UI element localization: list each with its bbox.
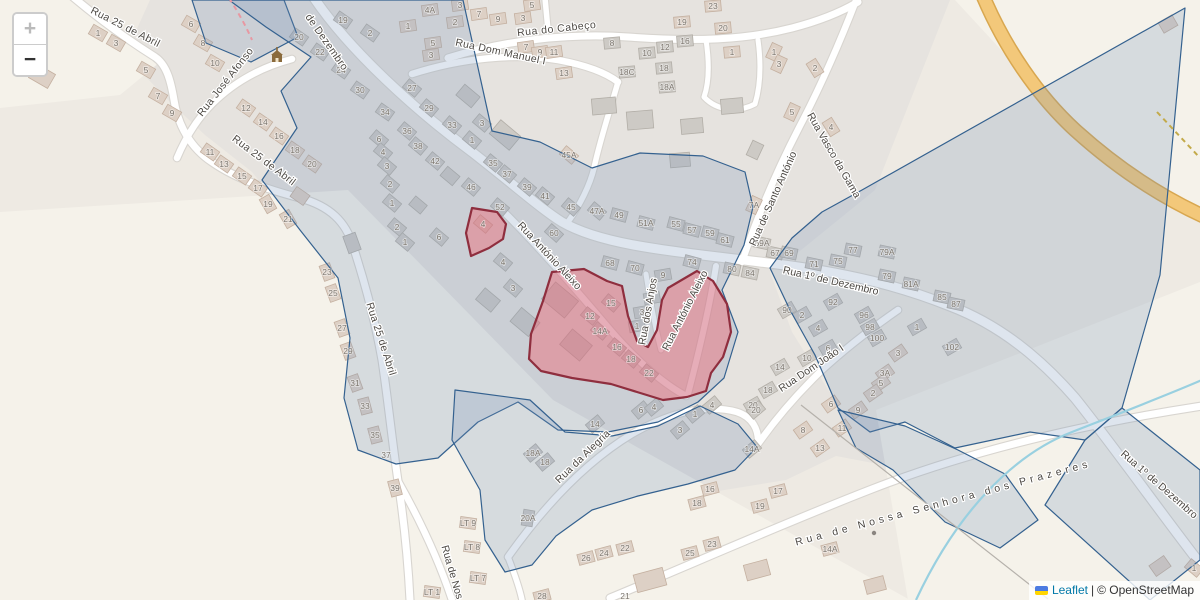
house-number: 13 <box>219 159 229 169</box>
house-number: 12 <box>585 311 595 321</box>
house-number: 14A <box>744 444 759 454</box>
house-number: 1 <box>390 198 395 208</box>
house-number: 2 <box>871 388 876 398</box>
house-number: 79A <box>879 247 894 257</box>
building-footprint <box>680 118 703 135</box>
house-number: 6 <box>377 134 382 144</box>
house-number: 39 <box>390 483 400 493</box>
house-number: 21 <box>283 214 293 224</box>
house-number: 7A <box>749 200 760 210</box>
house-number: 67 <box>770 248 780 258</box>
house-number: 18 <box>692 498 702 508</box>
house-number: 59 <box>705 228 715 238</box>
house-number: 2 <box>453 17 458 27</box>
house-number: 70 <box>630 263 640 273</box>
building-footprint <box>720 98 743 115</box>
house-number: 42 <box>430 156 440 166</box>
house-number: 4A <box>425 5 436 15</box>
house-number: 2 <box>813 63 818 73</box>
house-number: 1 <box>693 409 698 419</box>
house-number: 18A <box>659 82 674 92</box>
house-number: 3 <box>896 348 901 358</box>
map-tiles: 1357968101214161820111315171920222430342… <box>0 0 1200 600</box>
house-number: 20 <box>751 405 761 415</box>
house-number: 37 <box>502 169 512 179</box>
house-number: 16 <box>680 36 690 46</box>
house-number: 12 <box>241 103 251 113</box>
house-number: 81A <box>903 279 918 289</box>
house-number: 3 <box>678 425 683 435</box>
house-number: 25 <box>685 548 695 558</box>
house-number: 4 <box>652 402 657 412</box>
house-number: 13 <box>559 68 569 78</box>
building <box>626 110 653 130</box>
house-number: 74 <box>687 257 697 267</box>
house-number: 41 <box>540 191 550 201</box>
house-number: 1 <box>730 47 735 57</box>
house-number: 11 <box>550 47 559 57</box>
house-number: 8 <box>610 38 615 48</box>
house-number: 19 <box>338 15 348 25</box>
house-number: 27 <box>407 83 417 93</box>
house-number: 28 <box>537 591 547 600</box>
house-number: 22 <box>644 368 654 378</box>
attribution-bar: Leaflet|© OpenStreetMap <box>1029 581 1200 600</box>
house-number: 7 <box>156 91 161 101</box>
house-number: 20 <box>718 23 728 33</box>
house-number: 4 <box>710 400 715 410</box>
house-number: 1 <box>470 135 475 145</box>
house-number: LT 9 <box>460 518 476 528</box>
house-number: 1 <box>1192 563 1197 573</box>
house-number: 13 <box>815 443 825 453</box>
house-number: 15 <box>606 298 616 308</box>
house-number: 18 <box>763 385 773 395</box>
house-number: 27 <box>337 323 347 333</box>
house-number: 34 <box>380 107 390 117</box>
house-number: 36 <box>402 126 412 136</box>
house-number: 18C <box>619 67 635 77</box>
house-number: 18 <box>290 145 300 155</box>
house-number: 37 <box>381 450 391 460</box>
house-number: 23 <box>708 1 718 11</box>
house-number: LT 8 <box>464 542 480 552</box>
house-number: 5 <box>530 0 535 10</box>
house-number: 16 <box>274 131 284 141</box>
house-number: 10 <box>642 48 652 58</box>
house-number: 102 <box>945 342 959 352</box>
house-number: 98 <box>865 322 875 332</box>
house-number: 20A <box>520 513 535 523</box>
house-number: 39 <box>522 182 532 192</box>
house-number: 18 <box>626 354 636 364</box>
house-number: 100 <box>870 333 884 343</box>
attribution-separator: | <box>1091 583 1094 597</box>
house-number: 20 <box>307 159 317 169</box>
house-number: 1 <box>96 28 101 38</box>
house-number: 9 <box>496 14 501 24</box>
house-number: LT 1 <box>424 587 440 597</box>
house-number: 8 <box>201 38 206 48</box>
house-number: 30 <box>355 85 365 95</box>
leaflet-link[interactable]: Leaflet <box>1052 583 1088 597</box>
house-number: 24 <box>599 548 609 558</box>
house-number: 85 <box>937 292 947 302</box>
house-number: 14 <box>775 362 785 372</box>
building <box>680 118 703 135</box>
house-number: 29 <box>343 346 353 356</box>
house-number: 5 <box>431 38 436 48</box>
building <box>720 98 743 115</box>
house-number: 84 <box>745 268 755 278</box>
house-number: 46 <box>466 182 476 192</box>
house-number: 45A <box>561 150 576 160</box>
house-number: 14A <box>822 544 837 554</box>
house-number: 1 <box>406 21 411 31</box>
house-number: 4 <box>381 147 386 157</box>
house-number: 11 <box>838 423 847 433</box>
house-number: 3 <box>521 13 526 23</box>
house-number: 11 <box>206 147 215 157</box>
house-number: 26 <box>581 553 591 563</box>
house-number: 2 <box>395 222 400 232</box>
house-number: 2 <box>368 28 373 38</box>
house-number: 19 <box>263 199 273 209</box>
house-number: 68 <box>605 258 615 268</box>
power-pole-dot <box>872 531 876 535</box>
building-footprint <box>626 110 653 130</box>
house-number: 15 <box>237 171 247 181</box>
house-number: 21 <box>620 591 630 600</box>
house-number: 3 <box>480 118 485 128</box>
house-number: 87 <box>951 299 961 309</box>
house-number: 17 <box>773 486 783 496</box>
house-number: 3 <box>385 161 390 171</box>
house-number: 14 <box>258 117 268 127</box>
house-number: 33 <box>360 401 370 411</box>
house-number: 5 <box>879 378 884 388</box>
house-number: 6 <box>829 399 834 409</box>
house-number: 3 <box>429 50 434 60</box>
house-number: 23 <box>707 539 717 549</box>
house-number: 57 <box>687 225 697 235</box>
house-number: 52 <box>495 202 505 212</box>
house-number: 4 <box>816 323 821 333</box>
house-number: 18 <box>659 63 669 73</box>
house-number: 6 <box>189 19 194 29</box>
house-number: 18 <box>540 457 550 467</box>
house-number: 16 <box>705 484 715 494</box>
house-number: 10 <box>210 58 220 68</box>
house-number: 19 <box>755 501 765 511</box>
house-number: 45 <box>566 202 576 212</box>
house-number: 61 <box>720 235 730 245</box>
building <box>591 97 616 115</box>
house-number: 75 <box>833 256 843 266</box>
osm-link[interactable]: © OpenStreetMap <box>1097 583 1194 597</box>
house-number: 38 <box>413 141 423 151</box>
house-number: 14 <box>590 419 600 429</box>
house-number: 47A <box>589 206 604 216</box>
house-number: 60 <box>549 228 559 238</box>
house-number: 55 <box>671 219 681 229</box>
house-number: 80 <box>727 264 737 274</box>
house-number: 1 <box>772 47 777 57</box>
house-number: 49 <box>614 210 624 220</box>
zoom-control: + − <box>12 12 48 77</box>
house-number: 71 <box>809 259 819 269</box>
house-number: 23 <box>322 267 332 277</box>
house-number: 12 <box>660 42 670 52</box>
house-number: 5 <box>144 65 149 75</box>
house-number: 9 <box>856 405 861 415</box>
house-number: 35 <box>370 430 380 440</box>
house-number: 1 <box>403 237 408 247</box>
house-number: 9 <box>661 270 666 280</box>
zoom-in-button[interactable]: + <box>14 14 46 45</box>
house-number: 4 <box>481 219 486 229</box>
house-number: 19 <box>677 17 687 27</box>
house-number: 51A <box>638 218 653 228</box>
house-number: 9 <box>170 108 175 118</box>
house-number: 3 <box>511 283 516 293</box>
house-number: 4 <box>829 122 834 132</box>
house-number: 31 <box>350 378 360 388</box>
house-number: 90 <box>782 305 792 315</box>
house-number: 69 <box>784 248 794 258</box>
house-number: 1 <box>915 322 920 332</box>
map-canvas[interactable]: 1357968101214161820111315171920222430342… <box>0 0 1200 600</box>
house-number: 4 <box>501 257 506 267</box>
house-number: 3 <box>777 59 782 69</box>
ukraine-flag-icon <box>1035 586 1048 595</box>
house-number: 17 <box>253 183 263 193</box>
house-number: 3 <box>114 38 119 48</box>
house-number: 79 <box>882 271 892 281</box>
house-number: 16 <box>612 342 622 352</box>
house-number: 20 <box>294 32 304 42</box>
house-number: 18A <box>525 448 540 458</box>
house-number: 25 <box>328 288 338 298</box>
house-number: 14A <box>592 326 607 336</box>
house-number: 2 <box>800 310 805 320</box>
house-number: 2 <box>388 179 393 189</box>
building-footprint <box>591 97 616 115</box>
house-number: 6 <box>437 232 442 242</box>
house-number: 8 <box>801 425 806 435</box>
house-number: 96 <box>859 310 869 320</box>
house-number: 22 <box>620 543 630 553</box>
house-number: 29 <box>424 103 434 113</box>
zoom-out-button[interactable]: − <box>14 45 46 75</box>
house-number: 6 <box>639 405 644 415</box>
house-number: 35 <box>488 158 498 168</box>
church-door <box>276 58 279 62</box>
house-number: 92 <box>828 297 838 307</box>
house-number: 77 <box>848 245 858 255</box>
house-number: 3 <box>458 0 463 10</box>
house-number: 7 <box>477 9 482 19</box>
house-number: 3A <box>880 368 891 378</box>
house-number: LT 7 <box>470 573 486 583</box>
house-number: 5 <box>790 107 795 117</box>
house-number: 33 <box>447 120 457 130</box>
